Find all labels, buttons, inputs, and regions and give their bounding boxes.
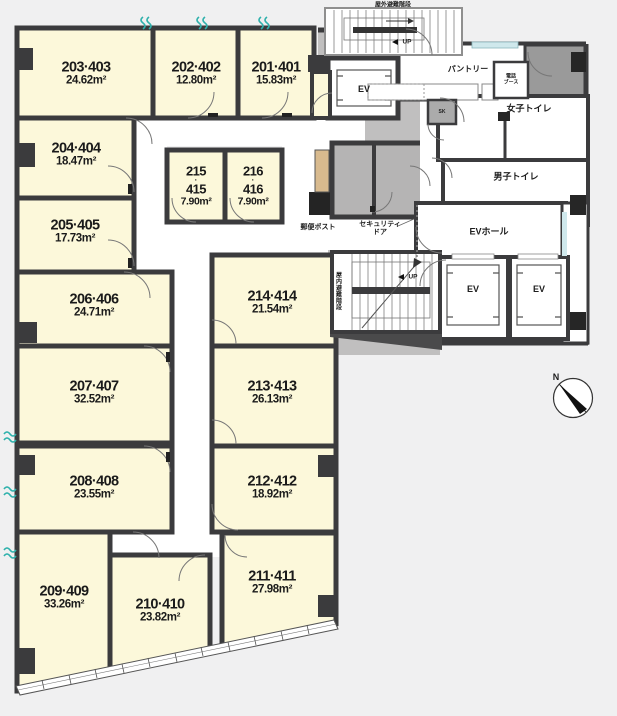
room-label-206-406: 206·406 24.71m² (69, 292, 118, 319)
womens-toilet-label: 女子トイレ (506, 102, 551, 115)
outdoor-stairs (325, 8, 462, 55)
room-label-216-416: 216 · 416 7.90m² (238, 165, 269, 208)
north-label: N (553, 372, 560, 382)
indoor-stairs (332, 252, 440, 332)
room-label-201-401: 201·401 15.83m² (251, 60, 300, 87)
room-label-204-404: 204·404 18.47m² (51, 141, 100, 168)
room-label-202-402: 202·402 12.80m² (171, 60, 220, 87)
room-label-214-414: 214·414 21.54m² (247, 289, 296, 316)
outdoor-stairs-label: 屋外避難階段 (375, 0, 411, 9)
room-label-212-412: 212·412 18.92m² (247, 474, 296, 501)
pantry-label: パントリー (448, 64, 488, 75)
sk-label: SK (439, 109, 446, 115)
up-label-outdoor: UP (402, 39, 411, 46)
indoor-stairs-label: 屋内避難階段 (334, 272, 343, 311)
compass (554, 379, 593, 418)
room-label-209-409: 209·409 33.26m² (39, 584, 88, 611)
room-label-205-405: 205·405 17.73m² (50, 218, 99, 245)
phone-booth-label: 電話 ブース (504, 74, 519, 86)
up-label-indoor: UP (408, 274, 417, 281)
mens-toilet-label: 男子トイレ (493, 170, 538, 183)
room-label-211-411: 211·411 27.98m² (248, 569, 295, 596)
ev-label-2: EV (467, 284, 479, 294)
ev-hall-label: EVホール (469, 225, 508, 238)
room-label-213-413: 213·413 26.13m² (247, 379, 296, 406)
ev-label-1: EV (358, 84, 370, 94)
security-door-label: セキュリティ ドア (359, 221, 401, 237)
room-label-210-410: 210·410 23.82m² (135, 597, 184, 624)
floorplan-canvas: 203·403 24.62m² 202·402 12.80m² 201·401 … (0, 0, 617, 716)
room-label-208-408: 208·408 23.55m² (69, 474, 118, 501)
mail-post-label: 郵便ポスト (301, 222, 336, 232)
room-label-203-403: 203·403 24.62m² (61, 60, 110, 87)
room-label-207-407: 207·407 32.52m² (69, 379, 118, 406)
room-label-215-415: 215 · 415 7.90m² (181, 165, 212, 208)
ev-label-3: EV (533, 284, 545, 294)
